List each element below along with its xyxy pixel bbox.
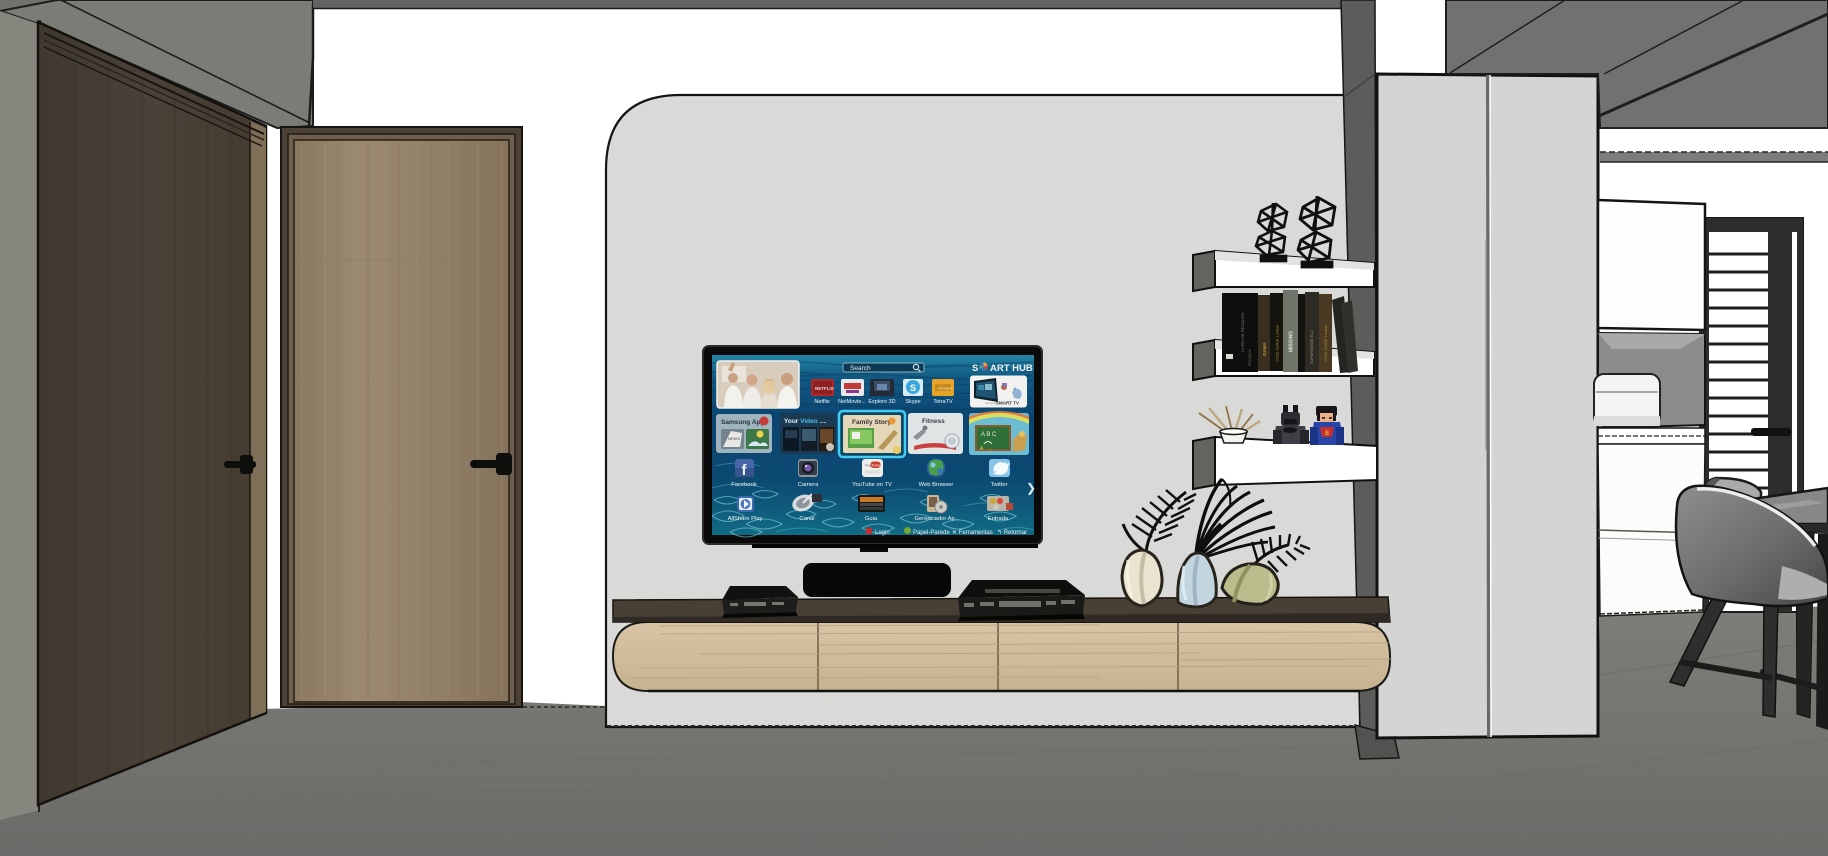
svg-text:MISSING: MISSING <box>1289 331 1295 352</box>
svg-text:Gerenciador Ap...: Gerenciador Ap... <box>914 516 960 522</box>
svg-text:COOL GUIDE London: COOL GUIDE London <box>1276 325 1280 362</box>
svg-text:Skype: Skype <box>905 399 920 405</box>
svg-text:S: S <box>972 363 978 374</box>
svg-text:❯: ❯ <box>1026 481 1036 495</box>
svg-text:Fitness: Fitness <box>922 418 945 425</box>
svg-text:Login: Login <box>875 530 890 536</box>
svg-text:✕ Ferramentas: ✕ Ferramentas <box>952 530 993 536</box>
svg-text:RECADOS: RECADOS <box>1248 348 1252 366</box>
svg-text:NETFLIX: NETFLIX <box>815 386 834 391</box>
svg-text:You: You <box>865 464 871 468</box>
svg-text:LIVRO DE RECADOS: LIVRO DE RECADOS <box>1240 312 1245 352</box>
svg-text:YouTube on TV: YouTube on TV <box>852 482 892 488</box>
svg-text:Search: Search <box>850 365 871 372</box>
svg-text:Tube: Tube <box>871 463 881 468</box>
svg-text:NetMovie...: NetMovie... <box>838 399 866 405</box>
svg-text:S: S <box>910 383 916 393</box>
svg-text:Camera: Camera <box>798 482 819 488</box>
svg-text:nomara: nomara <box>938 386 952 391</box>
svg-text:AllShare Play: AllShare Play <box>728 516 763 522</box>
svg-text:Guia: Guia <box>865 516 878 522</box>
svg-text:TetraTV: TetraTV <box>933 399 953 405</box>
svg-text:↰ Retornar: ↰ Retornar <box>997 529 1027 536</box>
svg-text:Explore 3D: Explore 3D <box>868 399 895 405</box>
svg-text:Your Video .....: Your Video ..... <box>784 418 827 425</box>
svg-text:Entrada: Entrada <box>988 516 1009 522</box>
svg-text:Family Story: Family Story <box>852 419 891 426</box>
svg-text:S: S <box>1325 431 1329 437</box>
svg-text:COOL GUIDE London: COOL GUIDE London <box>1324 325 1328 362</box>
svg-text:Papel-Parede: Papel-Parede <box>913 530 950 536</box>
svg-text:Canal: Canal <box>799 516 814 522</box>
svg-text:SMART TV: SMART TV <box>996 401 1019 406</box>
svg-text:Facebook: Facebook <box>731 482 757 488</box>
svg-text:A B C: A B C <box>981 432 997 438</box>
svg-text:ART HUB: ART HUB <box>990 363 1033 374</box>
svg-text:Twitter: Twitter <box>990 482 1007 488</box>
svg-text:NEWS: NEWS <box>728 436 740 441</box>
svg-text:SUPERSENSE K12: SUPERSENSE K12 <box>1310 330 1314 364</box>
svg-text:Netflix: Netflix <box>814 399 830 405</box>
svg-text:GAMA: GAMA <box>1262 342 1267 356</box>
svg-text:samsung: samsung <box>985 401 998 405</box>
svg-text:Web Browser: Web Browser <box>919 482 954 488</box>
